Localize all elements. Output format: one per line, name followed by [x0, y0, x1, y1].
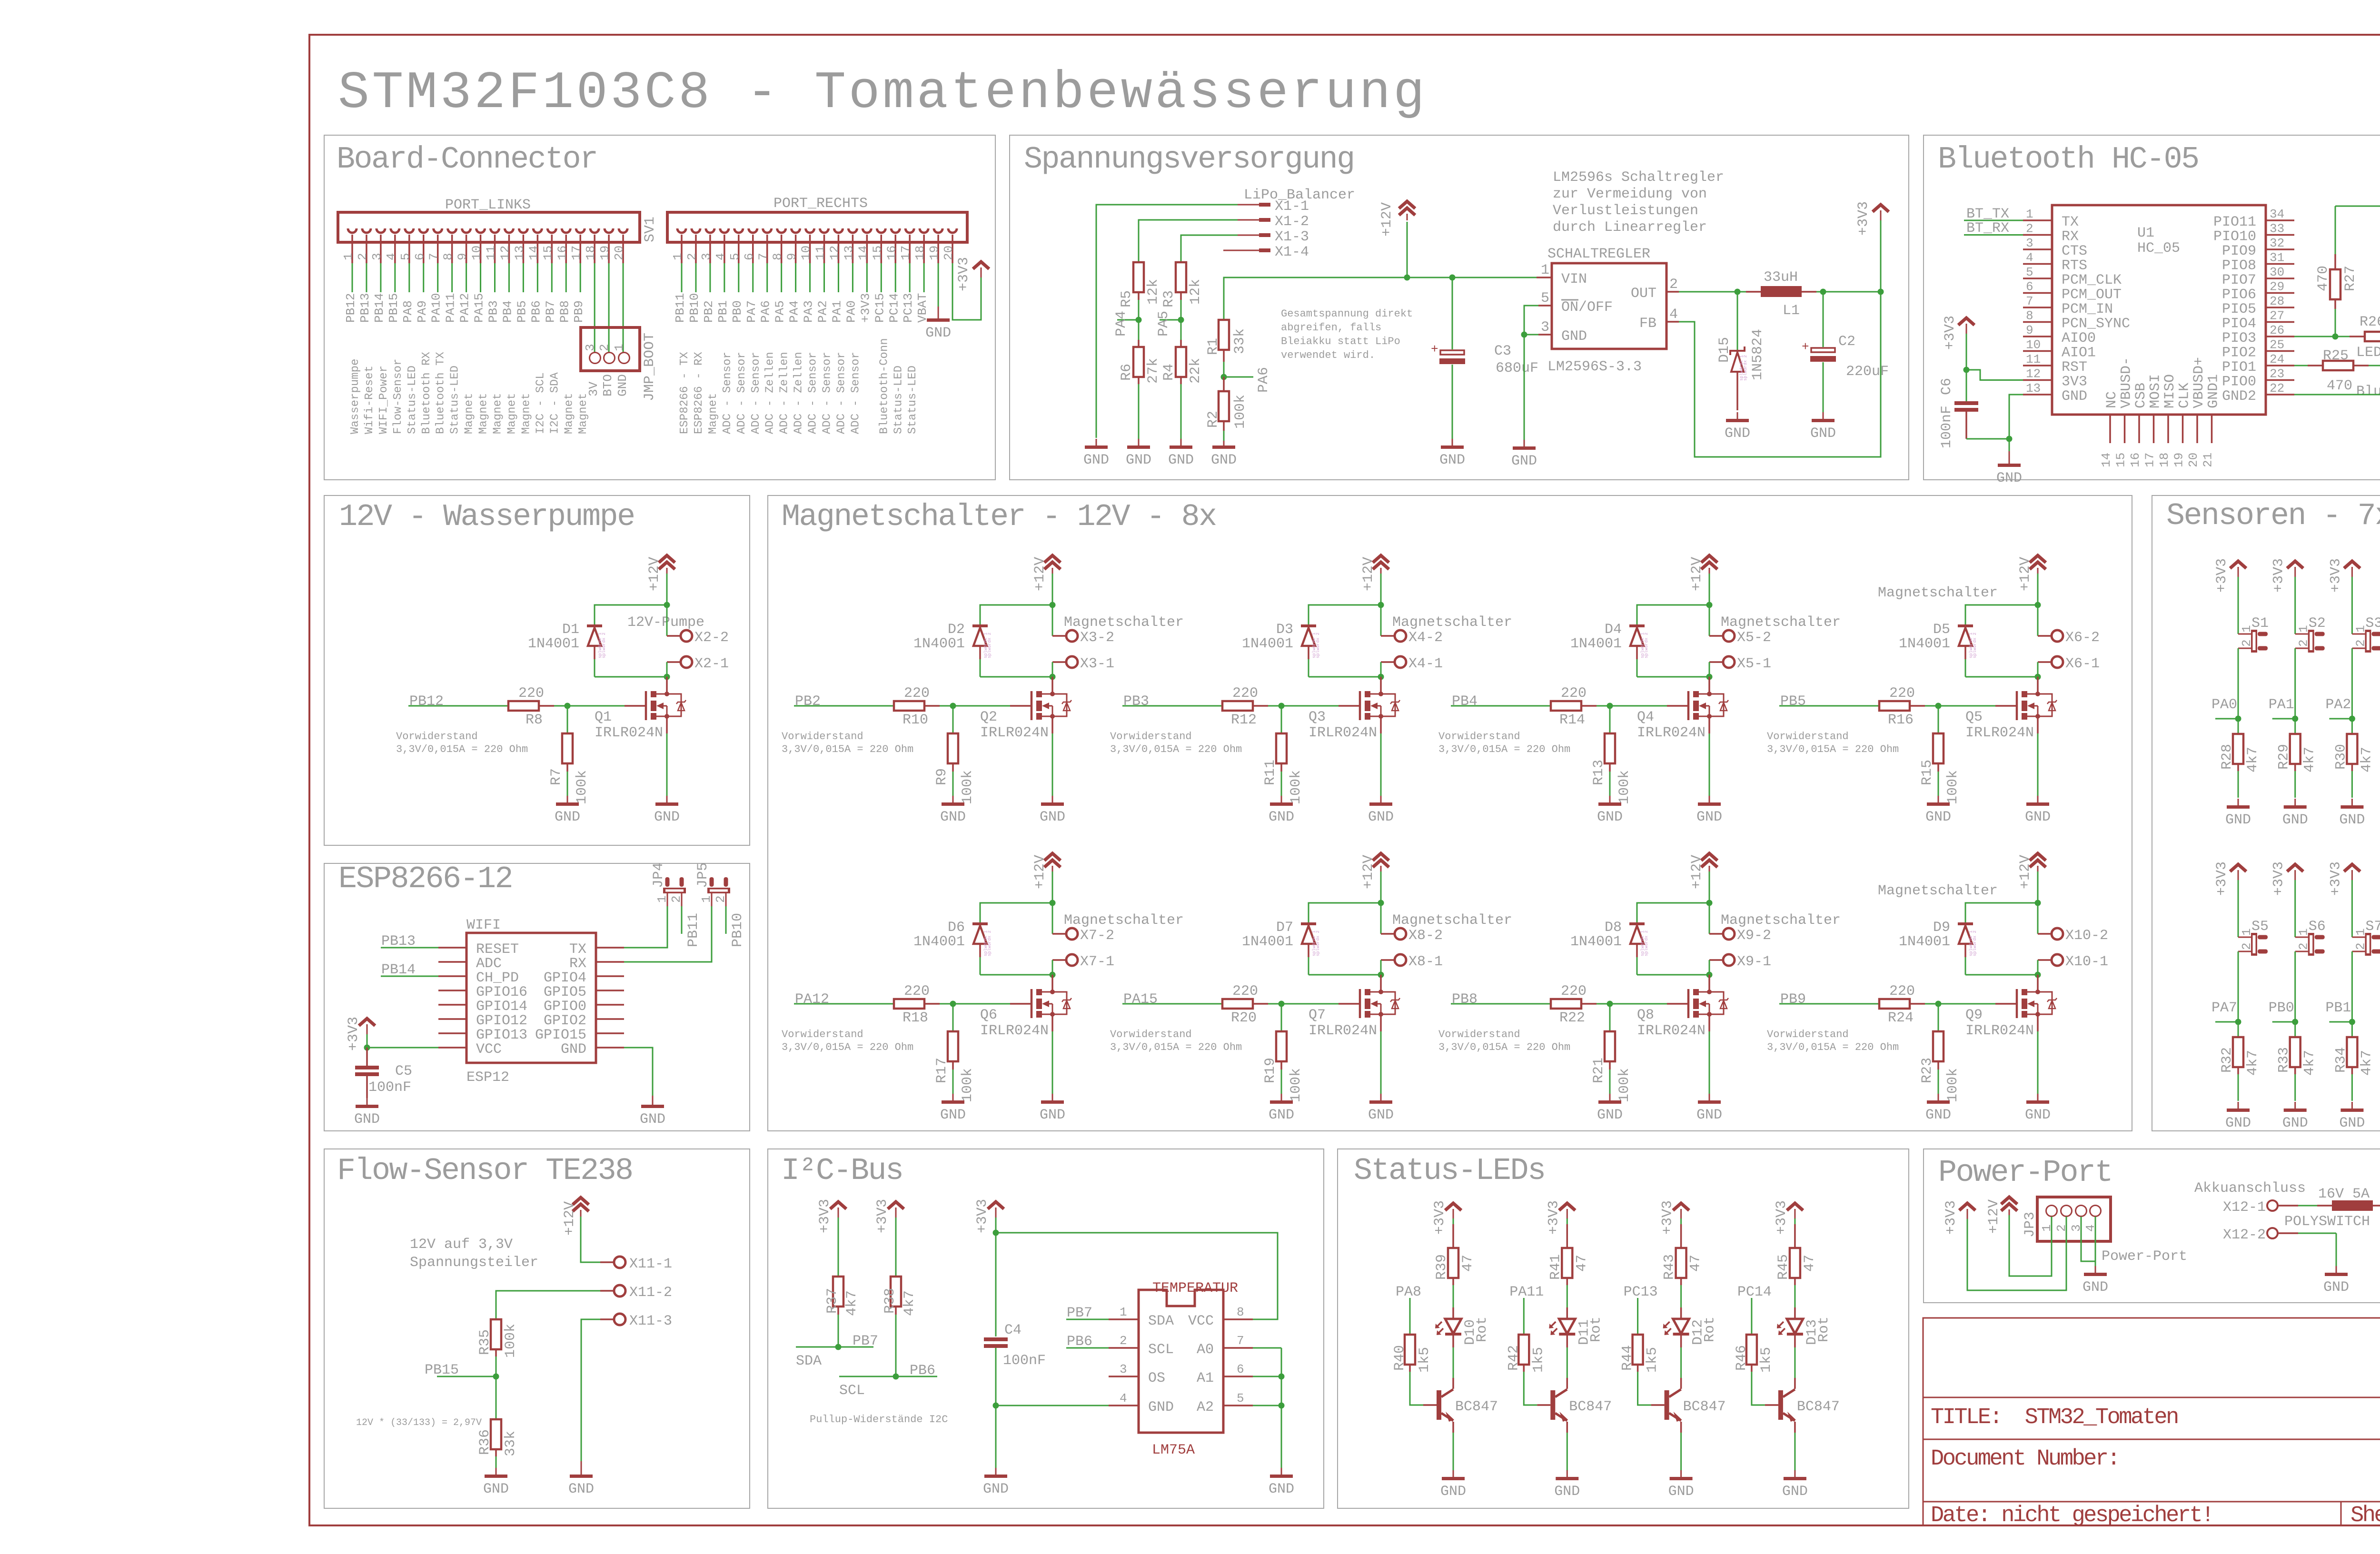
svg-text:NC: NC	[2104, 391, 2120, 408]
svg-text:GPIO4: GPIO4	[544, 970, 586, 986]
svg-text:PIO9: PIO9	[2222, 243, 2256, 259]
svg-text:PA7: PA7	[744, 300, 759, 323]
svg-text:ADC - Sensor: ADC - Sensor	[735, 352, 748, 434]
svg-text:SCL: SCL	[839, 1383, 865, 1399]
svg-text:3,3V/0,015A = 220 Ohm: 3,3V/0,015A = 220 Ohm	[1767, 743, 1899, 755]
svg-text:A1: A1	[1197, 1370, 1214, 1386]
svg-text:Akkuanschluss: Akkuanschluss	[2194, 1180, 2306, 1197]
svg-text:14: 14	[526, 246, 541, 260]
svg-text:R44: R44	[1620, 1345, 1636, 1371]
svg-text:ADC - Sensor: ADC - Sensor	[835, 352, 848, 434]
svg-text:PA1: PA1	[830, 300, 844, 323]
svg-text:220: 220	[1889, 983, 1915, 1000]
svg-text:GND: GND	[2082, 1279, 2108, 1296]
svg-text:3,3V/0,015A = 220 Ohm: 3,3V/0,015A = 220 Ohm	[1767, 1041, 1899, 1053]
svg-text:R5: R5	[1119, 290, 1135, 307]
svg-text:ADC - Zellen: ADC - Zellen	[778, 352, 791, 434]
svg-text:PA0: PA0	[2211, 697, 2237, 713]
svg-text:+3V3: +3V3	[2328, 861, 2344, 896]
svg-text:100k: 100k	[1232, 395, 1249, 429]
svg-text:S1: S1	[2251, 615, 2269, 632]
svg-text:ADC - Sensor: ADC - Sensor	[849, 352, 862, 434]
svg-text:verwendet wird.: verwendet wird.	[1281, 349, 1375, 361]
svg-text:1N4001: 1N4001	[528, 636, 579, 652]
svg-text:Magnet: Magnet	[463, 393, 476, 434]
svg-text:PA7: PA7	[2211, 1000, 2237, 1016]
svg-text:Q6: Q6	[980, 1007, 997, 1023]
svg-text:R27: R27	[2342, 266, 2359, 291]
svg-text:A2: A2	[1197, 1399, 1214, 1415]
svg-text:220: 220	[1232, 983, 1258, 1000]
svg-text:2: 2	[669, 895, 684, 903]
svg-text:R35: R35	[477, 1329, 493, 1355]
svg-text:47: 47	[1688, 1255, 1704, 1272]
svg-text:PB12: PB12	[344, 293, 358, 323]
svg-text:1: 1	[341, 253, 356, 260]
svg-text:X4-1: X4-1	[1408, 656, 1443, 672]
svg-text:GND: GND	[354, 1111, 380, 1128]
svg-text:SCHALTREGLER: SCHALTREGLER	[1547, 246, 1650, 262]
svg-text:GND: GND	[2282, 1115, 2308, 1131]
svg-text:X3-1: X3-1	[1080, 656, 1114, 672]
svg-text:PB10: PB10	[687, 293, 702, 323]
svg-text:GND: GND	[1597, 1107, 1623, 1123]
svg-text:GND: GND	[2025, 809, 2051, 825]
svg-text:1k5: 1k5	[1417, 1347, 1433, 1373]
svg-text:X9-2: X9-2	[1737, 928, 1771, 944]
svg-text:1: 1	[2026, 207, 2033, 221]
svg-text:R13: R13	[1591, 760, 1607, 785]
svg-text:2: 2	[1120, 1334, 1127, 1348]
svg-text:CLK: CLK	[2177, 383, 2193, 408]
svg-text:GND: GND	[940, 1107, 966, 1123]
svg-text:GND: GND	[2323, 1279, 2349, 1296]
svg-text:GND: GND	[1083, 452, 1109, 468]
svg-text:X1-2: X1-2	[1275, 214, 1309, 230]
svg-text:splwdrdx 2: splwdrdx 2	[1644, 930, 1649, 956]
svg-text:220: 220	[904, 983, 930, 1000]
svg-text:PA6: PA6	[759, 300, 773, 323]
svg-text:PA8: PA8	[401, 300, 415, 323]
svg-text:18: 18	[913, 246, 927, 260]
svg-text:AIO0: AIO0	[2062, 330, 2096, 346]
svg-text:PC14: PC14	[1737, 1284, 1772, 1300]
svg-text:OS: OS	[1148, 1370, 1165, 1386]
svg-text:12k: 12k	[1188, 279, 1204, 305]
svg-text:LM2596s Schaltregler: LM2596s Schaltregler	[1553, 169, 1724, 186]
svg-text:R11: R11	[1262, 760, 1279, 785]
svg-text:C3: C3	[1494, 343, 1511, 359]
svg-text:PA12: PA12	[795, 991, 829, 1008]
svg-text:D15: D15	[1716, 337, 1733, 363]
svg-text:31: 31	[2270, 251, 2284, 265]
svg-text:R21: R21	[1591, 1058, 1607, 1083]
svg-text:R39: R39	[1434, 1254, 1450, 1280]
svg-text:Wasserpumpe: Wasserpumpe	[349, 359, 362, 434]
svg-text:100k: 100k	[1945, 1068, 1961, 1102]
svg-text:32: 32	[2270, 236, 2284, 250]
svg-text:14: 14	[856, 246, 870, 260]
svg-text:D9: D9	[1933, 920, 1950, 936]
svg-text:30: 30	[2270, 265, 2284, 279]
svg-text:S5: S5	[2251, 919, 2269, 935]
svg-text:R24: R24	[1888, 1010, 1914, 1026]
svg-text:IRLR024N: IRLR024N	[1637, 725, 1706, 741]
svg-text:splwdrdx 2: splwdrdx 2	[987, 633, 992, 658]
svg-text:2: 2	[2240, 639, 2254, 647]
svg-text:PA15: PA15	[472, 293, 486, 323]
svg-text:STM32F103C8 - Tomatenbewässeru: STM32F103C8 - Tomatenbewässerung	[338, 64, 1427, 123]
svg-text:3: 3	[370, 253, 384, 260]
svg-text:PA9: PA9	[415, 300, 429, 323]
svg-text:GND: GND	[1668, 1484, 1694, 1500]
svg-text:GND: GND	[1925, 809, 1951, 825]
svg-text:I2C - SCL: I2C - SCL	[534, 372, 547, 434]
svg-text:47: 47	[1574, 1255, 1590, 1272]
svg-text:+: +	[1802, 340, 1809, 354]
svg-text:BC847: BC847	[1797, 1399, 1840, 1415]
svg-text:PA3: PA3	[802, 300, 816, 323]
svg-text:Q2: Q2	[980, 709, 997, 725]
svg-text:100k: 100k	[1616, 1068, 1633, 1102]
svg-text:R3: R3	[1161, 290, 1177, 307]
svg-text:Vorwiderstand: Vorwiderstand	[1767, 731, 1849, 742]
svg-text:26: 26	[2270, 323, 2284, 337]
svg-text:2: 2	[2026, 222, 2033, 236]
svg-text:1: 1	[671, 253, 685, 260]
svg-text:Magnet: Magnet	[520, 393, 533, 434]
svg-text:3V: 3V	[586, 381, 601, 396]
svg-text:TX: TX	[569, 941, 586, 958]
svg-text:R32: R32	[2219, 1047, 2235, 1073]
svg-text:R16: R16	[1888, 712, 1914, 728]
svg-text:Rot: Rot	[1816, 1316, 1832, 1342]
svg-text:GPIO12: GPIO12	[476, 1013, 527, 1029]
svg-text:3: 3	[583, 344, 597, 351]
svg-text:Status-LED: Status-LED	[406, 366, 419, 434]
svg-text:Q5: Q5	[1965, 709, 1983, 725]
svg-text:3: 3	[699, 253, 714, 260]
svg-text:R30: R30	[2333, 744, 2349, 770]
svg-text:+3V3: +3V3	[1943, 1200, 1959, 1235]
svg-text:33uH: 33uH	[1764, 269, 1798, 286]
svg-text:2: 2	[2353, 639, 2368, 647]
svg-text:11: 11	[484, 246, 498, 260]
svg-text:Spannungsversorgung: Spannungsversorgung	[1024, 142, 1354, 177]
svg-text:splwdrdx 2: splwdrdx 2	[1973, 930, 1977, 956]
svg-text:GND: GND	[615, 374, 630, 396]
svg-text:100k: 100k	[960, 1068, 976, 1102]
svg-text:R18: R18	[902, 1010, 928, 1026]
svg-text:R14: R14	[1559, 712, 1585, 728]
svg-text:TX: TX	[2062, 214, 2079, 230]
svg-text:PB0: PB0	[730, 300, 744, 323]
svg-text:27: 27	[2270, 309, 2284, 323]
svg-text:680uF: 680uF	[1496, 360, 1538, 376]
svg-text:+3V3: +3V3	[2328, 558, 2344, 593]
svg-text:11: 11	[2026, 352, 2041, 366]
svg-text:+3V3: +3V3	[1942, 316, 1958, 350]
svg-text:IRLR024N: IRLR024N	[1309, 1023, 1377, 1039]
svg-text:17: 17	[2143, 453, 2157, 467]
svg-text:R25: R25	[2323, 348, 2349, 364]
svg-text:+3V3: +3V3	[974, 1199, 991, 1233]
svg-text:+12V: +12V	[1689, 855, 1705, 889]
svg-text:PB14: PB14	[372, 293, 387, 323]
svg-text:3,3V/0,015A = 220 Ohm: 3,3V/0,015A = 220 Ohm	[1110, 743, 1242, 755]
svg-text:PA10: PA10	[429, 293, 444, 323]
svg-text:33k: 33k	[503, 1431, 519, 1456]
svg-text:X5-1: X5-1	[1737, 656, 1771, 672]
svg-text:D7: D7	[1276, 920, 1293, 936]
svg-text:Pullup-Widerstände I2C: Pullup-Widerstände I2C	[810, 1414, 948, 1425]
svg-text:Sensoren - 7x: Sensoren - 7x	[2166, 498, 2380, 534]
svg-text:X8-1: X8-1	[1408, 954, 1443, 970]
svg-text:1k5: 1k5	[1530, 1347, 1547, 1373]
svg-text:100k: 100k	[503, 1324, 519, 1358]
svg-text:2: 2	[2297, 639, 2311, 647]
svg-text:1: 1	[655, 895, 669, 903]
svg-text:+12V: +12V	[646, 557, 663, 591]
svg-text:PA12: PA12	[458, 293, 472, 323]
svg-text:Bleiakku statt LiPo: Bleiakku statt LiPo	[1281, 336, 1400, 347]
svg-text:JP1: JP1	[2378, 205, 2380, 230]
svg-text:R46: R46	[1734, 1345, 1750, 1371]
svg-text:BC847: BC847	[1455, 1399, 1498, 1415]
svg-text:R22: R22	[1559, 1010, 1585, 1026]
svg-text:JP3: JP3	[2022, 1212, 2038, 1237]
svg-text:PA0: PA0	[844, 300, 858, 323]
svg-text:100k: 100k	[1288, 1068, 1304, 1102]
svg-text:5: 5	[728, 253, 742, 260]
svg-text:R41: R41	[1547, 1254, 1564, 1280]
svg-text:Q1: Q1	[595, 709, 612, 725]
svg-text:5: 5	[398, 253, 413, 260]
svg-text:X5-2: X5-2	[1737, 630, 1771, 646]
svg-text:19: 19	[927, 246, 942, 260]
svg-text:4: 4	[2026, 251, 2033, 265]
svg-text:C6: C6	[1939, 378, 1955, 395]
svg-text:25: 25	[2270, 338, 2284, 352]
svg-text:13: 13	[512, 246, 526, 260]
svg-text:VIN: VIN	[1561, 271, 1587, 287]
svg-text:18: 18	[584, 246, 598, 260]
svg-text:Sheet: 1/1: Sheet: 1/1	[2350, 1503, 2380, 1528]
svg-text:PA11: PA11	[1509, 1284, 1544, 1300]
svg-text:+3V3: +3V3	[2214, 558, 2230, 593]
svg-text:19: 19	[2172, 453, 2186, 467]
svg-text:4k7: 4k7	[2302, 1050, 2318, 1076]
svg-text:R45: R45	[1775, 1254, 1792, 1280]
svg-text:GND: GND	[2025, 1107, 2051, 1123]
svg-text:X8-2: X8-2	[1408, 928, 1443, 944]
svg-text:3V3: 3V3	[2062, 374, 2087, 390]
svg-text:2: 2	[2297, 942, 2311, 950]
svg-text:GND: GND	[2225, 812, 2251, 828]
svg-text:Magnet: Magnet	[577, 393, 590, 434]
svg-text:PB10: PB10	[730, 913, 746, 947]
svg-text:16: 16	[884, 246, 899, 260]
svg-text:GND: GND	[2225, 1115, 2251, 1131]
svg-text:Magnetschalter: Magnetschalter	[1721, 912, 1841, 929]
svg-text:GND: GND	[1040, 809, 1065, 825]
svg-text:4k7: 4k7	[844, 1290, 860, 1316]
svg-text:Bluetooth HC-05: Bluetooth HC-05	[1938, 142, 2199, 177]
svg-text:Vorwiderstand: Vorwiderstand	[782, 1029, 863, 1040]
svg-text:D2: D2	[948, 622, 965, 638]
svg-text:GND: GND	[2282, 812, 2308, 828]
svg-text:Q7: Q7	[1309, 1007, 1326, 1023]
svg-text:R36: R36	[477, 1429, 493, 1455]
svg-text:1k5: 1k5	[1645, 1347, 1661, 1373]
svg-text:R4: R4	[1161, 364, 1177, 381]
svg-text:8: 8	[2026, 309, 2033, 323]
svg-text:R23: R23	[1919, 1058, 1935, 1083]
svg-text:JP4: JP4	[651, 862, 667, 888]
svg-text:PC13: PC13	[1624, 1284, 1658, 1300]
svg-text:4k7: 4k7	[2302, 747, 2318, 772]
svg-text:Magnetschalter: Magnetschalter	[1878, 883, 1998, 899]
svg-text:3,3V/0,015A = 220 Ohm: 3,3V/0,015A = 220 Ohm	[1110, 1041, 1242, 1053]
svg-text:ESP12: ESP12	[466, 1069, 509, 1086]
svg-text:GPIO13: GPIO13	[476, 1027, 527, 1043]
svg-text:PC15: PC15	[873, 293, 887, 323]
svg-text:21: 21	[2201, 453, 2215, 467]
svg-text:22k: 22k	[1188, 358, 1204, 384]
svg-text:ESP8266-12: ESP8266-12	[338, 861, 512, 897]
svg-text:CTS: CTS	[2062, 243, 2087, 259]
svg-text:ADC - Zellen: ADC - Zellen	[764, 352, 777, 434]
svg-text:+3V3: +3V3	[858, 293, 873, 323]
svg-text:16: 16	[2128, 453, 2142, 467]
svg-text:47: 47	[1460, 1255, 1476, 1272]
svg-text:8: 8	[771, 253, 785, 260]
svg-text:WIFI: WIFI	[466, 917, 501, 933]
svg-text:12: 12	[827, 246, 842, 260]
svg-text:8: 8	[441, 253, 456, 260]
svg-text:IRLR024N: IRLR024N	[595, 725, 663, 741]
svg-text:R43: R43	[1662, 1254, 1678, 1280]
svg-text:3,3V/0,015A = 220 Ohm: 3,3V/0,015A = 220 Ohm	[1438, 743, 1570, 755]
svg-text:S6: S6	[2309, 919, 2326, 935]
svg-text:Rot: Rot	[1702, 1316, 1718, 1342]
svg-text:PB4: PB4	[500, 300, 515, 323]
svg-text:PB1: PB1	[716, 300, 730, 323]
svg-text:PC13: PC13	[901, 293, 915, 323]
svg-text:3,3V/0,015A = 220 Ohm: 3,3V/0,015A = 220 Ohm	[1438, 1041, 1570, 1053]
svg-text:PA5: PA5	[773, 300, 787, 323]
svg-text:+3V3: +3V3	[2214, 861, 2230, 896]
svg-text:2: 2	[2353, 942, 2368, 950]
svg-text:LED1: LED1	[2356, 345, 2380, 361]
svg-text:100k: 100k	[1945, 770, 1961, 804]
svg-text:X11-3: X11-3	[629, 1313, 672, 1329]
svg-text:GND: GND	[940, 809, 966, 825]
svg-text:220: 220	[1889, 685, 1915, 702]
svg-text:220: 220	[1561, 983, 1587, 1000]
svg-text:1: 1	[2240, 928, 2254, 936]
svg-text:7: 7	[427, 253, 441, 260]
svg-text:Vorwiderstand: Vorwiderstand	[782, 731, 863, 742]
svg-text:GND: GND	[1439, 452, 1465, 468]
svg-text:Vorwiderstand: Vorwiderstand	[396, 731, 478, 742]
svg-text:PA2: PA2	[2325, 697, 2351, 713]
svg-text:U1: U1	[2137, 225, 2154, 241]
svg-text:PIO1: PIO1	[2222, 359, 2256, 376]
svg-text:2: 2	[1669, 277, 1678, 293]
svg-text:6: 6	[2026, 280, 2033, 294]
svg-text:6: 6	[413, 253, 427, 260]
svg-text:7: 7	[2026, 294, 2033, 308]
svg-text:X11-2: X11-2	[629, 1285, 672, 1301]
svg-text:X1-4: X1-4	[1275, 244, 1309, 260]
svg-text:GND: GND	[983, 1481, 1009, 1497]
svg-text:2: 2	[685, 253, 699, 260]
svg-text:+12V: +12V	[1986, 1199, 2002, 1234]
svg-text:PA11: PA11	[444, 293, 458, 323]
svg-text:12k: 12k	[1145, 279, 1161, 305]
svg-text:12V-Pumpe: 12V-Pumpe	[627, 614, 704, 631]
svg-text:X10-1: X10-1	[2065, 954, 2108, 970]
svg-text:4: 4	[384, 253, 398, 260]
svg-text:RX: RX	[2062, 229, 2079, 245]
svg-text:IRLR024N: IRLR024N	[1965, 1023, 2034, 1039]
svg-text:SCL: SCL	[1148, 1342, 1174, 1358]
svg-text:+3V3: +3V3	[2271, 558, 2287, 593]
svg-text:X6-2: X6-2	[2065, 630, 2100, 646]
svg-text:Magnetschalter: Magnetschalter	[1064, 912, 1184, 929]
svg-text:PCM_CLK: PCM_CLK	[2062, 272, 2122, 288]
svg-text:PA15: PA15	[1123, 991, 1158, 1008]
svg-text:PB4: PB4	[1452, 693, 1478, 710]
svg-text:3,3V/0,015A = 220 Ohm: 3,3V/0,015A = 220 Ohm	[782, 1041, 913, 1053]
svg-text:28: 28	[2270, 294, 2284, 308]
svg-text:1: 1	[2297, 928, 2311, 936]
svg-text:1N4001: 1N4001	[1899, 636, 1950, 652]
svg-text:MOSI: MOSI	[2148, 374, 2164, 408]
svg-text:+: +	[1431, 342, 1438, 356]
svg-text:Vorwiderstand: Vorwiderstand	[1767, 1029, 1849, 1040]
svg-text:4k7: 4k7	[2245, 747, 2261, 772]
svg-text:Document Number:: Document Number:	[1931, 1446, 2119, 1472]
svg-text:PB13: PB13	[358, 293, 372, 323]
svg-text:R26: R26	[2360, 314, 2380, 330]
svg-text:Rot: Rot	[1474, 1316, 1490, 1342]
svg-text:Status-LED: Status-LED	[449, 366, 462, 434]
svg-text:PB9: PB9	[1780, 991, 1806, 1008]
svg-text:1: 1	[1120, 1305, 1127, 1319]
svg-text:470: 470	[2327, 378, 2352, 394]
svg-text:X11-1: X11-1	[629, 1256, 672, 1272]
svg-text:TITLE: STM32_Tomaten: TITLE: STM32_Tomaten	[1931, 1405, 2178, 1430]
svg-text:PB6: PB6	[910, 1363, 935, 1379]
svg-text:X7-2: X7-2	[1080, 928, 1114, 944]
svg-text:4k7: 4k7	[902, 1290, 918, 1316]
svg-text:R29: R29	[2276, 744, 2292, 770]
svg-text:RESET: RESET	[476, 941, 519, 958]
svg-text:Date: nicht gespeichert!: Date: nicht gespeichert!	[1931, 1503, 2213, 1528]
svg-text:SV1: SV1	[642, 217, 658, 242]
svg-text:20: 20	[2186, 453, 2201, 467]
svg-text:+12V: +12V	[2017, 855, 2033, 889]
svg-text:+3V3: +3V3	[1774, 1200, 1790, 1235]
svg-text:3,3V/0,015A = 220 Ohm: 3,3V/0,015A = 220 Ohm	[782, 743, 913, 755]
svg-text:220: 220	[518, 685, 544, 702]
svg-text:Magnetschalter - 12V - 8x: Magnetschalter - 12V - 8x	[782, 499, 1216, 534]
svg-text:JP5: JP5	[695, 862, 711, 888]
svg-text:Vorwiderstand: Vorwiderstand	[1110, 731, 1192, 742]
svg-text:abgreifen, falls: abgreifen, falls	[1281, 322, 1381, 334]
